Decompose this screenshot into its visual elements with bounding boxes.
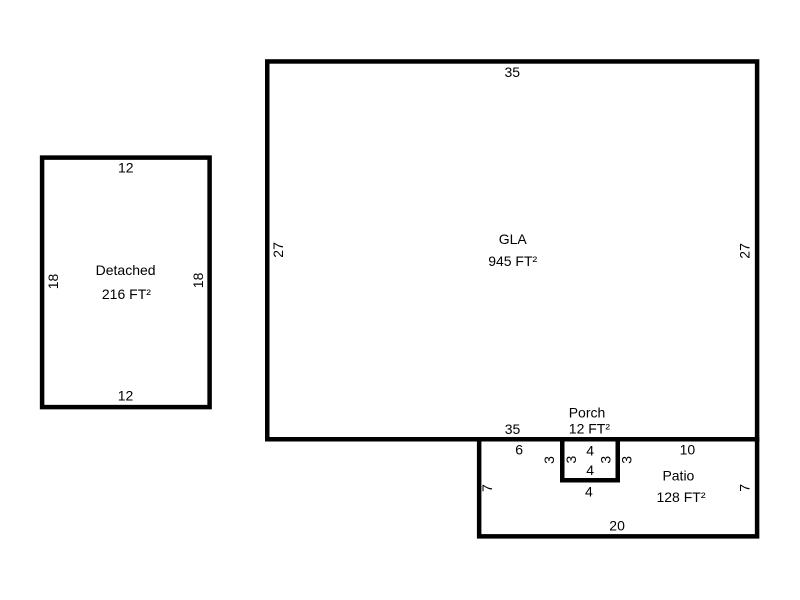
svg-text:3: 3 — [541, 456, 557, 464]
svg-text:7: 7 — [736, 484, 752, 492]
svg-text:Porch: Porch — [569, 404, 606, 420]
svg-text:128 FT²: 128 FT² — [656, 489, 705, 505]
svg-text:12 FT²: 12 FT² — [569, 420, 611, 436]
svg-text:3: 3 — [618, 456, 634, 464]
svg-text:945 FT²: 945 FT² — [488, 253, 537, 269]
svg-text:20: 20 — [609, 518, 625, 534]
svg-text:12: 12 — [118, 388, 134, 404]
svg-text:4: 4 — [586, 443, 594, 459]
svg-text:3: 3 — [597, 456, 613, 464]
svg-text:4: 4 — [586, 462, 594, 478]
svg-text:18: 18 — [190, 272, 206, 288]
svg-text:10: 10 — [680, 442, 696, 458]
svg-text:7: 7 — [479, 484, 495, 492]
svg-text:12: 12 — [118, 160, 134, 176]
svg-text:27: 27 — [270, 242, 286, 258]
svg-text:216 FT²: 216 FT² — [102, 286, 151, 302]
svg-text:GLA: GLA — [499, 231, 528, 247]
svg-text:6: 6 — [515, 441, 523, 457]
svg-text:35: 35 — [505, 421, 521, 437]
svg-text:18: 18 — [45, 274, 61, 290]
svg-text:Detached: Detached — [96, 262, 156, 278]
svg-text:27: 27 — [737, 243, 753, 259]
svg-text:35: 35 — [505, 64, 521, 80]
svg-text:4: 4 — [585, 484, 593, 500]
svg-text:Patio: Patio — [662, 467, 694, 483]
svg-text:3: 3 — [563, 455, 579, 463]
